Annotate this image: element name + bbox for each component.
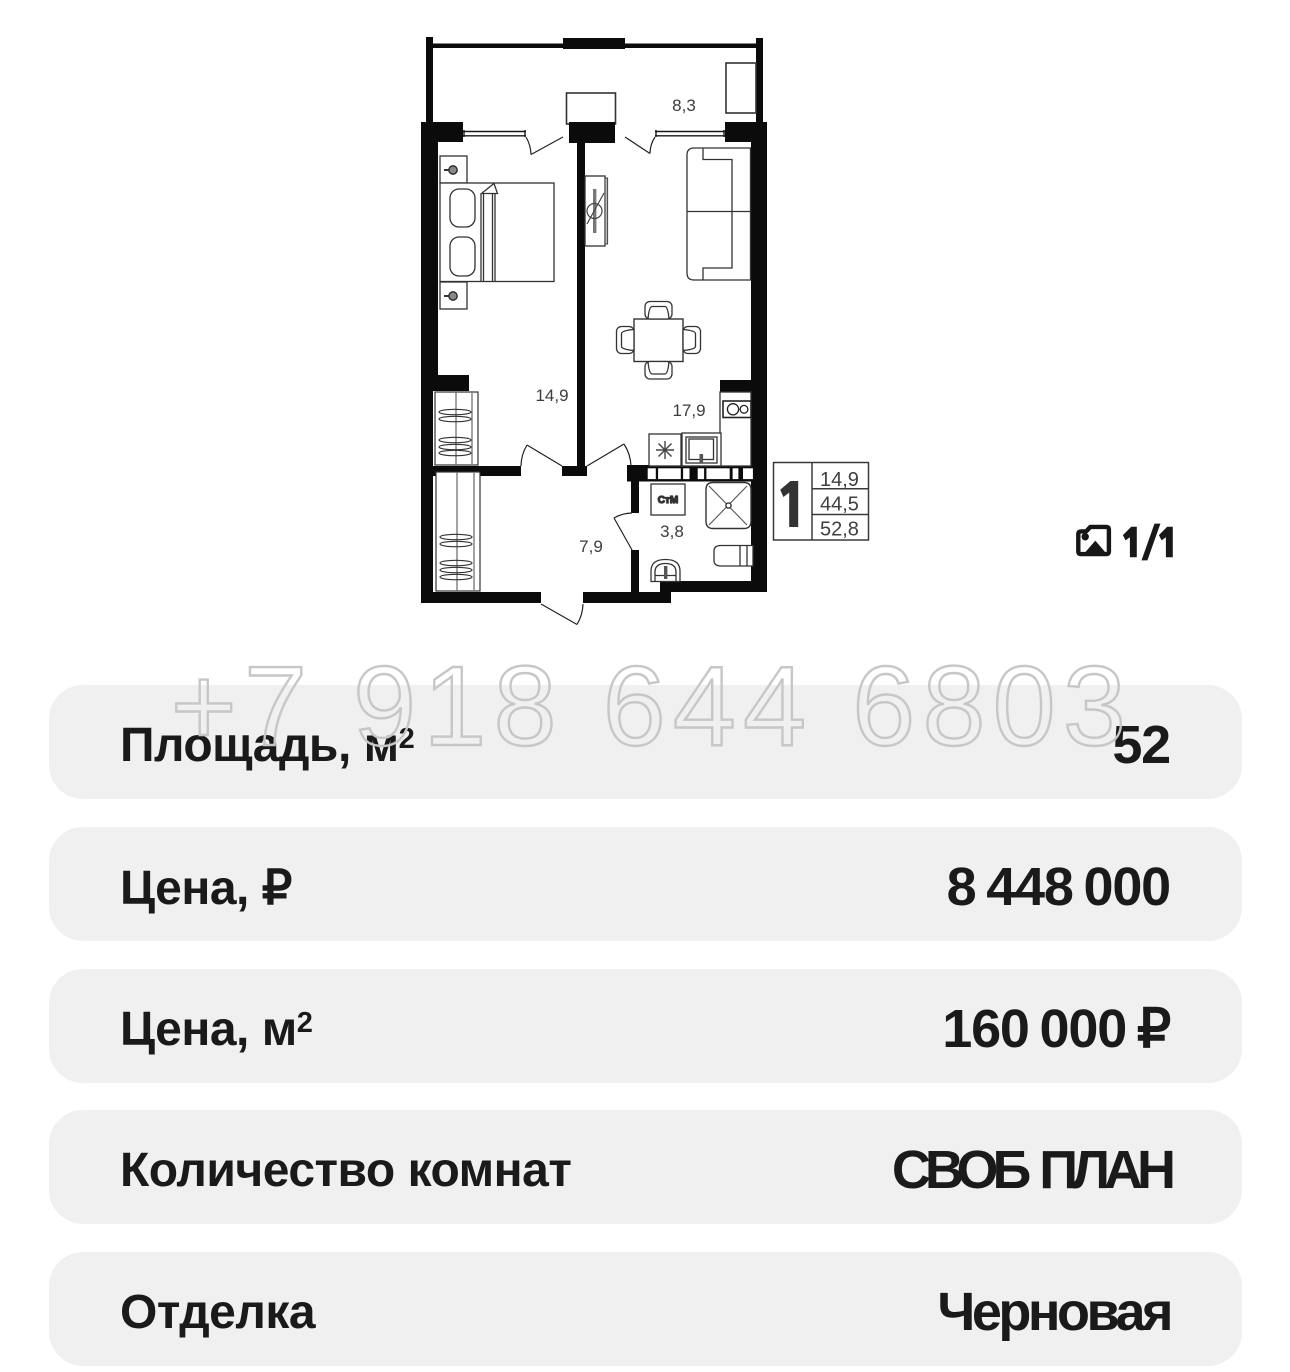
svg-text:3,8: 3,8: [660, 522, 684, 541]
svg-text:СтМ: СтМ: [658, 495, 678, 506]
svg-text:17,9: 17,9: [672, 401, 705, 420]
svg-text:44,5: 44,5: [820, 494, 859, 516]
svg-text:14,9: 14,9: [820, 469, 859, 491]
svg-text:8,3: 8,3: [672, 96, 696, 115]
svg-text:14,9: 14,9: [535, 386, 568, 405]
svg-text:52,8: 52,8: [820, 519, 859, 541]
svg-text:7,9: 7,9: [579, 537, 603, 556]
